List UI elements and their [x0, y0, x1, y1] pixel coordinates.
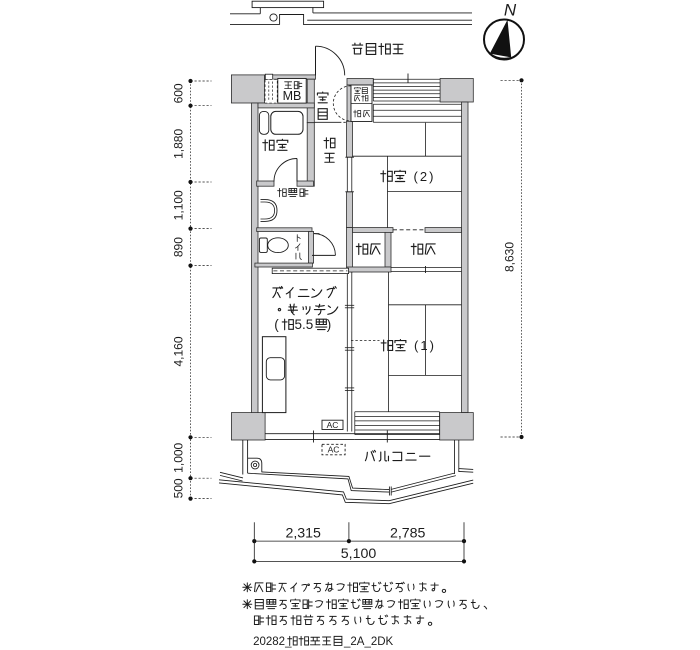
svg-text:(2): (2) — [414, 169, 436, 184]
svg-text:AC: AC — [328, 445, 340, 455]
svg-text:): ) — [327, 317, 332, 332]
svg-text:1,100: 1,100 — [172, 190, 186, 220]
svg-text:2,315: 2,315 — [285, 526, 321, 542]
svg-text:5,100: 5,100 — [341, 546, 377, 562]
svg-text:1,880: 1,880 — [172, 129, 186, 159]
svg-text:600: 600 — [172, 83, 186, 103]
svg-text:AC: AC — [327, 420, 339, 430]
svg-text:500: 500 — [172, 478, 186, 498]
svg-text:(: ( — [274, 317, 279, 332]
svg-text:8,630: 8,630 — [503, 242, 517, 272]
svg-text:(1): (1) — [414, 338, 436, 353]
svg-text:1,000: 1,000 — [172, 442, 186, 472]
svg-text:MB: MB — [283, 89, 302, 103]
svg-text:_2A_2DK: _2A_2DK — [343, 636, 394, 648]
svg-text:5.5: 5.5 — [295, 317, 314, 332]
svg-text:N: N — [504, 1, 517, 20]
svg-text:890: 890 — [172, 237, 186, 257]
svg-text:2,785: 2,785 — [390, 526, 426, 542]
svg-text:4,160: 4,160 — [172, 336, 186, 366]
svg-text:20282_: 20282_ — [253, 636, 292, 648]
